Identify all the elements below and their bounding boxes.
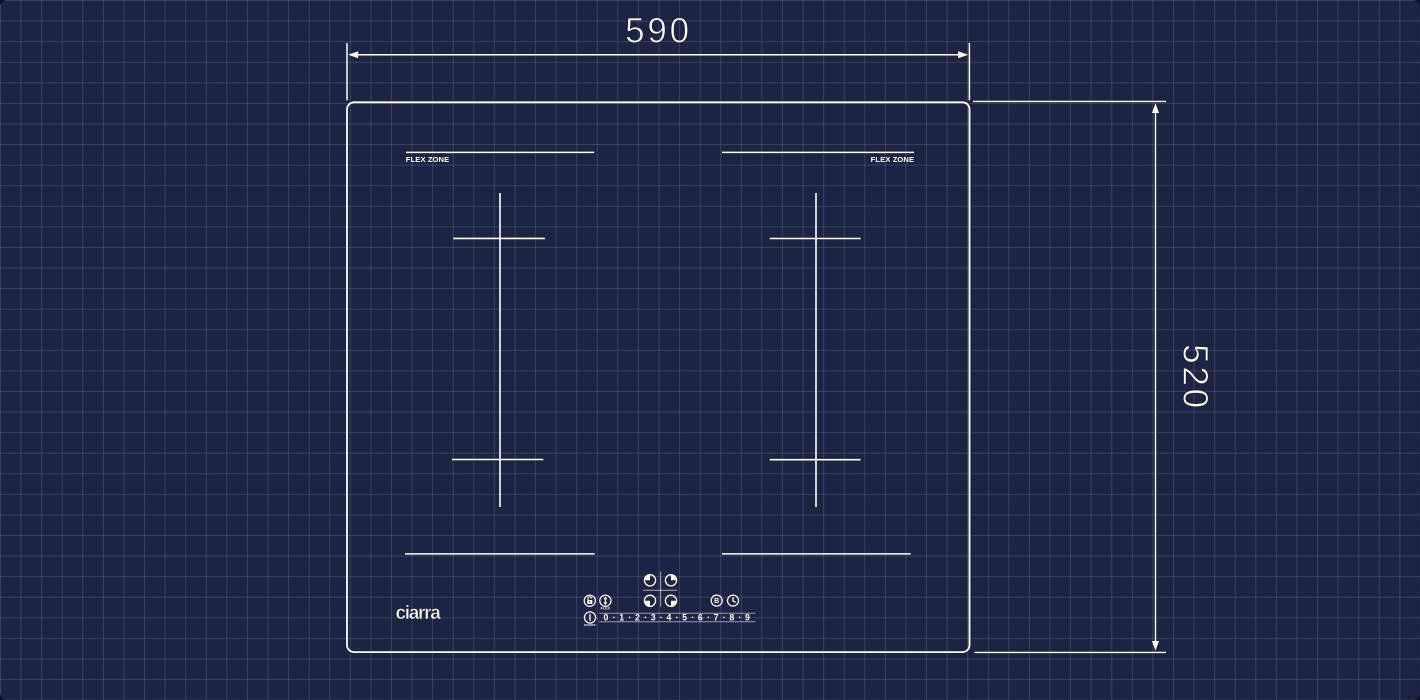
svg-text:8: 8	[729, 612, 734, 622]
svg-text:590: 590	[625, 12, 692, 51]
svg-text:ciarra: ciarra	[396, 603, 442, 624]
svg-text:7: 7	[714, 612, 719, 622]
svg-text:520: 520	[1176, 344, 1215, 411]
svg-text:FLEX: FLEX	[601, 607, 611, 611]
svg-text:B: B	[714, 596, 719, 605]
svg-text:0: 0	[604, 612, 609, 622]
svg-text:5: 5	[682, 612, 687, 622]
svg-text:1: 1	[619, 612, 624, 622]
svg-text:ON/OFF: ON/OFF	[584, 623, 596, 627]
svg-text:4: 4	[666, 612, 671, 622]
svg-text:FLEX ZONE: FLEX ZONE	[871, 155, 915, 164]
svg-text:9: 9	[745, 612, 750, 622]
svg-text:FLEX ZONE: FLEX ZONE	[406, 155, 450, 164]
svg-text:2: 2	[635, 612, 640, 622]
svg-text:6: 6	[698, 612, 703, 622]
svg-text:3: 3	[651, 612, 656, 622]
